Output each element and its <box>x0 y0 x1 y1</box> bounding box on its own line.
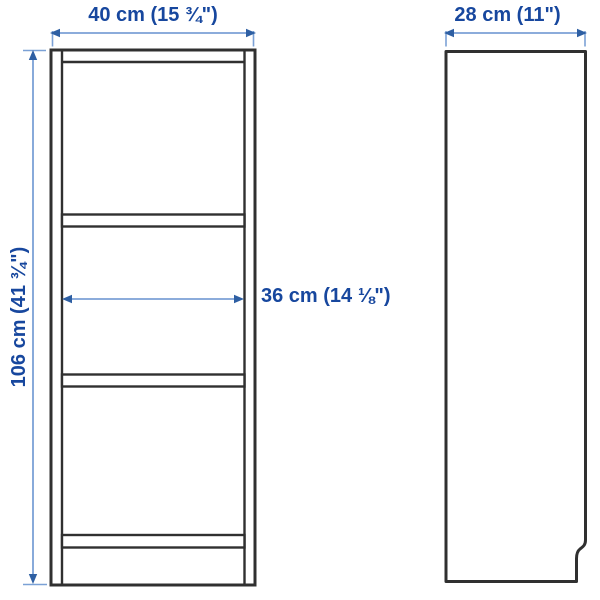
depth-dimension <box>444 29 587 47</box>
width-arrowhead-left <box>50 29 60 37</box>
height-arrowhead-bottom <box>29 574 37 584</box>
front-outer-frame <box>51 50 255 585</box>
dimension-diagram: 40 cm (15 ¾") 28 cm (11") 106 cm (41 ¾")… <box>0 0 600 600</box>
bookcase-side-view <box>446 52 586 582</box>
front-inner-width-label: 36 cm (14 ⅛") <box>261 285 391 307</box>
width-arrowhead-right <box>246 29 256 37</box>
height-arrowhead-top <box>29 50 37 60</box>
front-shelf-1 <box>62 215 245 227</box>
width-dimension <box>50 29 256 47</box>
side-depth-label: 28 cm (11") <box>420 4 595 26</box>
front-width-label: 40 cm (15 ¾") <box>53 4 253 26</box>
side-panel-outline <box>446 52 586 582</box>
bookcase-front-view <box>51 50 255 585</box>
front-height-label: 106 cm (41 ¾") <box>8 216 30 418</box>
front-bottom-shelf <box>62 535 245 548</box>
front-shelf-2 <box>62 375 245 387</box>
